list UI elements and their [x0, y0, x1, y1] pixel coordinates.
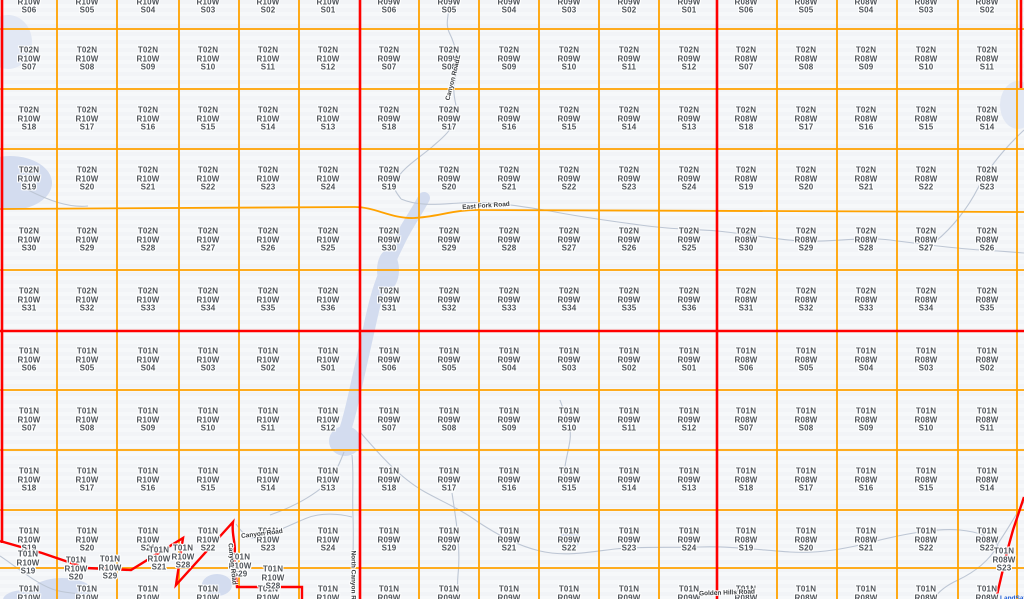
pond-water: [329, 426, 361, 456]
map-viewport[interactable]: T02N R10W S06T02N R10W S05T02N R10W S04T…: [0, 0, 1024, 599]
stream-line: [352, 455, 353, 599]
section-line-horizontal: [0, 207, 1024, 218]
pond-water: [202, 574, 232, 596]
stream-line: [934, 545, 998, 599]
stream-line: [560, 400, 570, 485]
stream-line: [236, 514, 352, 538]
pond-water: [560, 529, 580, 549]
map-canvas: [0, 0, 1024, 599]
pond-water: [0, 15, 32, 69]
boundary-line: [996, 497, 1024, 599]
reservoir-water: [340, 198, 424, 444]
stream-line: [401, 199, 1024, 253]
pond-water: [0, 156, 52, 210]
stream-line: [270, 452, 344, 515]
stream-line: [936, 130, 1024, 241]
